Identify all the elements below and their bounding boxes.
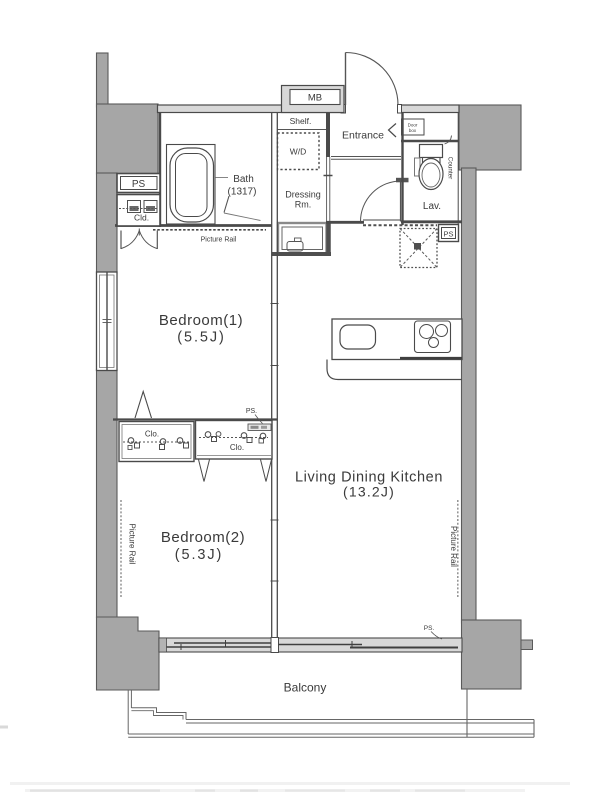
svg-text:Shelf.: Shelf. [290, 116, 312, 126]
svg-text:Door: Door [408, 123, 418, 128]
svg-text:Picture Rail: Picture Rail [201, 237, 237, 244]
svg-text:(5.3J): (5.3J) [175, 547, 223, 563]
svg-text:Bedroom(1): Bedroom(1) [159, 312, 243, 329]
svg-text:Balcony: Balcony [284, 681, 327, 695]
svg-text:(13.2J): (13.2J) [343, 484, 395, 500]
svg-text:Rm.: Rm. [295, 200, 312, 210]
svg-text:Entrance: Entrance [342, 130, 384, 142]
svg-text:Picture Rail: Picture Rail [128, 524, 137, 565]
svg-text:Bath: Bath [233, 174, 254, 185]
svg-text:Picture Rail: Picture Rail [449, 526, 458, 567]
svg-text:(5.5J): (5.5J) [177, 330, 225, 346]
svg-text:PS: PS [132, 179, 146, 190]
svg-text:PS.: PS. [424, 625, 435, 632]
svg-text:Dressing: Dressing [285, 190, 321, 200]
svg-text:Bedroom(2): Bedroom(2) [161, 529, 245, 546]
svg-text:(1317): (1317) [228, 187, 257, 198]
svg-text:PS.: PS. [246, 408, 257, 415]
svg-text:Cld.: Cld. [134, 213, 149, 223]
svg-text:Clo.: Clo. [230, 443, 244, 452]
svg-text:PS: PS [443, 230, 453, 239]
svg-text:MB: MB [308, 93, 322, 104]
svg-text:Lav.: Lav. [423, 201, 441, 212]
svg-text:W/D: W/D [290, 147, 307, 157]
svg-text:Clo.: Clo. [145, 430, 159, 439]
svg-text:Counter: Counter [447, 157, 454, 179]
svg-text:box: box [409, 128, 417, 133]
